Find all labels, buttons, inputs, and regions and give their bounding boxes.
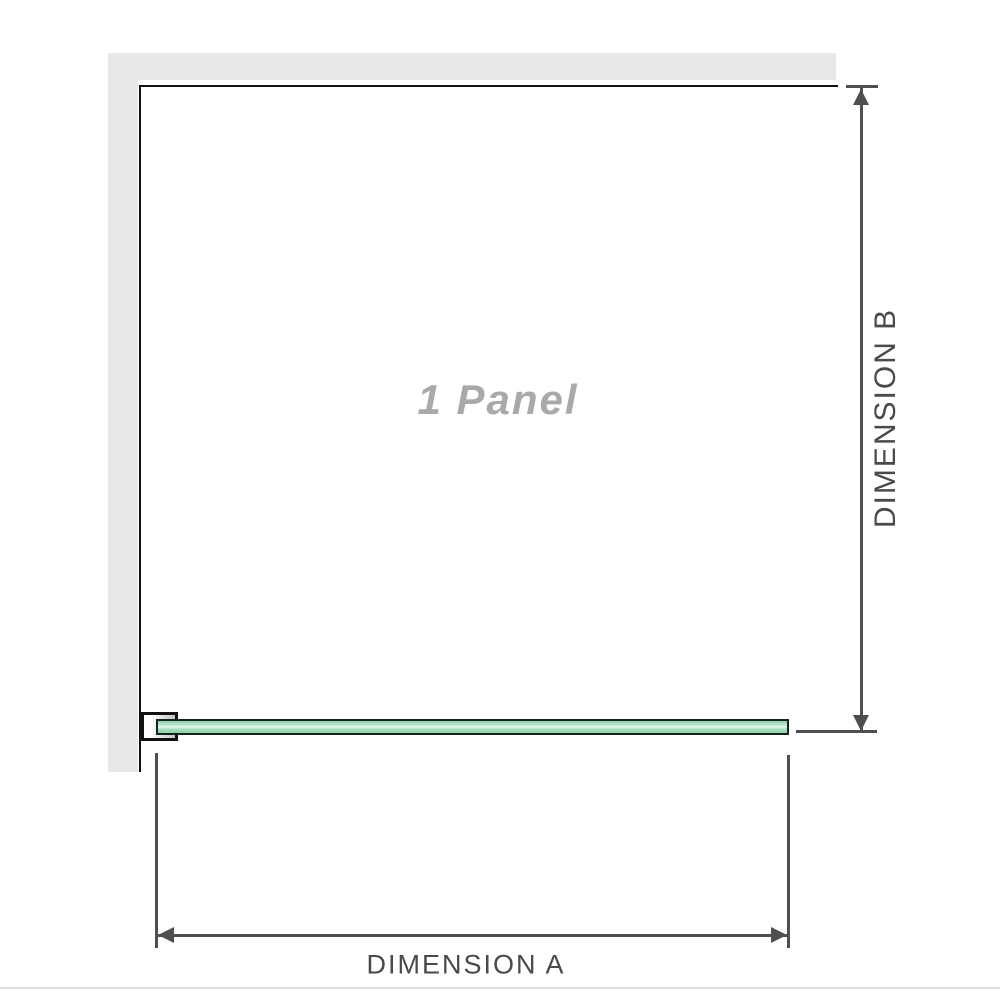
dimension-a-line bbox=[157, 934, 788, 937]
panel-count-label: 1 Panel bbox=[417, 376, 578, 424]
arrow-down-icon bbox=[853, 715, 869, 731]
dimension-a-label: DIMENSION A bbox=[366, 950, 565, 981]
dimension-b-line bbox=[860, 88, 863, 731]
wall-top-bar bbox=[108, 53, 836, 80]
glass-panel bbox=[156, 719, 789, 735]
footer-rule bbox=[0, 987, 1000, 989]
arrow-left-icon bbox=[158, 927, 174, 943]
panel-dimension-diagram: 1 Panel DIMENSION B DIMENSION A bbox=[0, 0, 1000, 1000]
dimension-a-left-extension bbox=[155, 753, 158, 948]
panel-outline bbox=[139, 85, 838, 772]
wall-left-bar bbox=[108, 53, 138, 772]
arrow-right-icon bbox=[771, 927, 787, 943]
dimension-b-label: DIMENSION B bbox=[869, 308, 903, 528]
dimension-a-right-extension bbox=[787, 755, 790, 948]
arrow-up-icon bbox=[853, 89, 869, 105]
